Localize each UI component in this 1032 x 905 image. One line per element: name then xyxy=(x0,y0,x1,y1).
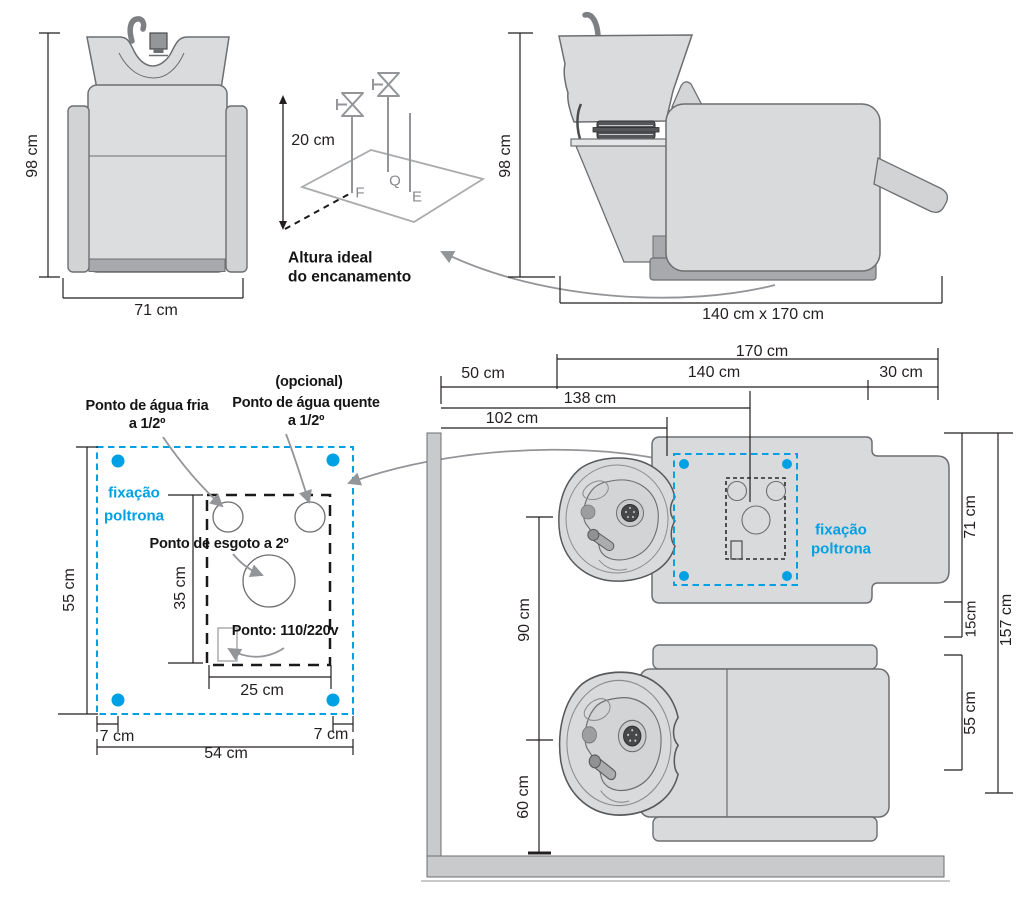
iso-hot-letter: Q xyxy=(389,174,401,189)
top-view-drawing xyxy=(421,348,1013,881)
unit2-front-bar xyxy=(653,817,877,841)
unit1-basin xyxy=(559,458,675,581)
detail-fixation-label-line2: poltrona xyxy=(104,509,164,524)
power-label: Ponto: 110/220v xyxy=(232,624,339,639)
top-chair-width-dim: 71 cm xyxy=(963,495,979,539)
top-total-length-dim: 170 cm xyxy=(736,344,788,360)
top-total-width-dim: 157 cm xyxy=(999,594,1015,646)
top-chair-length-dim: 140 cm xyxy=(688,365,740,381)
unit2-basin xyxy=(560,672,679,815)
fixation-bolt xyxy=(112,455,125,468)
top-basin-gap-dim: 90 cm xyxy=(517,598,533,642)
cold-water-label-line2: a 1/2º xyxy=(129,417,165,432)
top-extension-dim: 30 cm xyxy=(879,365,923,381)
diagram-canvas xyxy=(0,0,1032,905)
unit2-back-bar xyxy=(653,645,877,669)
detail-margin-left-dim: 7 cm xyxy=(100,729,135,745)
fixation-bolt xyxy=(112,694,125,707)
drain-point xyxy=(243,555,295,607)
side-footrest xyxy=(874,158,947,212)
cold-water-point xyxy=(213,502,243,532)
front-height-dim: 98 cm xyxy=(25,134,41,178)
hot-water-label-line1: Ponto de água quente xyxy=(232,396,379,411)
side-hose-icon xyxy=(585,15,598,35)
iso-cold-letter: F xyxy=(355,186,364,201)
top-fixation-label-line1: fixação xyxy=(815,523,867,538)
cold-valve-icon xyxy=(337,93,363,193)
detail-fixation-label-line1: fixação xyxy=(108,486,160,501)
front-faucet-icon xyxy=(150,33,167,49)
side-mount-plate xyxy=(571,139,668,146)
front-armrest-left xyxy=(68,106,89,272)
iso-drain-letter: E xyxy=(412,190,422,205)
unit2-seat xyxy=(640,669,889,817)
front-hose-icon xyxy=(130,19,143,41)
top-wall-clearance-dim: 60 cm xyxy=(516,775,532,819)
iso-caption-line1: Altura ideal xyxy=(288,250,372,266)
detail-height-dim: 55 cm xyxy=(62,568,78,612)
detail-margin-right-dim: 7 cm xyxy=(314,727,349,743)
side-headrest-tab xyxy=(672,82,703,107)
top-seat-width-dim: 55 cm xyxy=(963,691,979,735)
unit1-chair-top xyxy=(652,437,949,603)
detail-inner-height-dim: 35 cm xyxy=(173,566,189,610)
top-fixation-label-line2: poltrona xyxy=(811,542,871,557)
detail-inner-width-dim: 25 cm xyxy=(240,683,284,699)
fixation-bolt xyxy=(327,454,340,467)
wall-horizontal xyxy=(427,856,944,877)
front-chair-body xyxy=(88,85,227,272)
top-wall-offset-dim: 50 cm xyxy=(461,366,505,382)
side-chair-body xyxy=(666,104,880,271)
top-fixation-offset-dim: 102 cm xyxy=(486,411,538,427)
hot-water-point xyxy=(295,502,325,532)
height-arrow xyxy=(279,95,287,230)
drain-label: Ponto de esgoto a 2º xyxy=(149,537,288,552)
installation-diagram: 98 cm 71 cm 20 cm F Q E Altura ideal do … xyxy=(0,0,1032,905)
side-height-dim: 98 cm xyxy=(498,134,514,178)
iso-caption-line2: do encanamento xyxy=(288,269,411,285)
fixation-bolt xyxy=(782,459,792,469)
hot-water-label-line2: a 1/2º xyxy=(288,414,324,429)
detail-dim-lines xyxy=(58,447,353,755)
unit1-cold-point xyxy=(728,482,747,501)
cold-water-label-line1: Ponto de água fria xyxy=(86,399,209,414)
front-view-drawing xyxy=(39,19,247,298)
detail-width-dim: 54 cm xyxy=(204,746,248,762)
fixation-bolt xyxy=(679,459,689,469)
hot-water-note: (opcional) xyxy=(275,375,342,390)
fixation-bolt xyxy=(679,571,689,581)
unit1-hot-point xyxy=(767,482,786,501)
iso-height-dim: 20 cm xyxy=(291,133,335,149)
wall-vertical xyxy=(427,433,441,856)
side-view-drawing xyxy=(508,15,947,303)
unit1-drain-point xyxy=(742,506,770,534)
fixation-bolt xyxy=(327,694,340,707)
front-armrest-right xyxy=(226,106,247,272)
top-gap-dim: 15cm xyxy=(964,601,979,638)
side-footprint-dim: 140 cm x 170 cm xyxy=(702,307,824,323)
front-width-dim: 71 cm xyxy=(134,303,178,319)
top-drain-offset-dim: 138 cm xyxy=(564,391,616,407)
fixation-bolt xyxy=(782,571,792,581)
